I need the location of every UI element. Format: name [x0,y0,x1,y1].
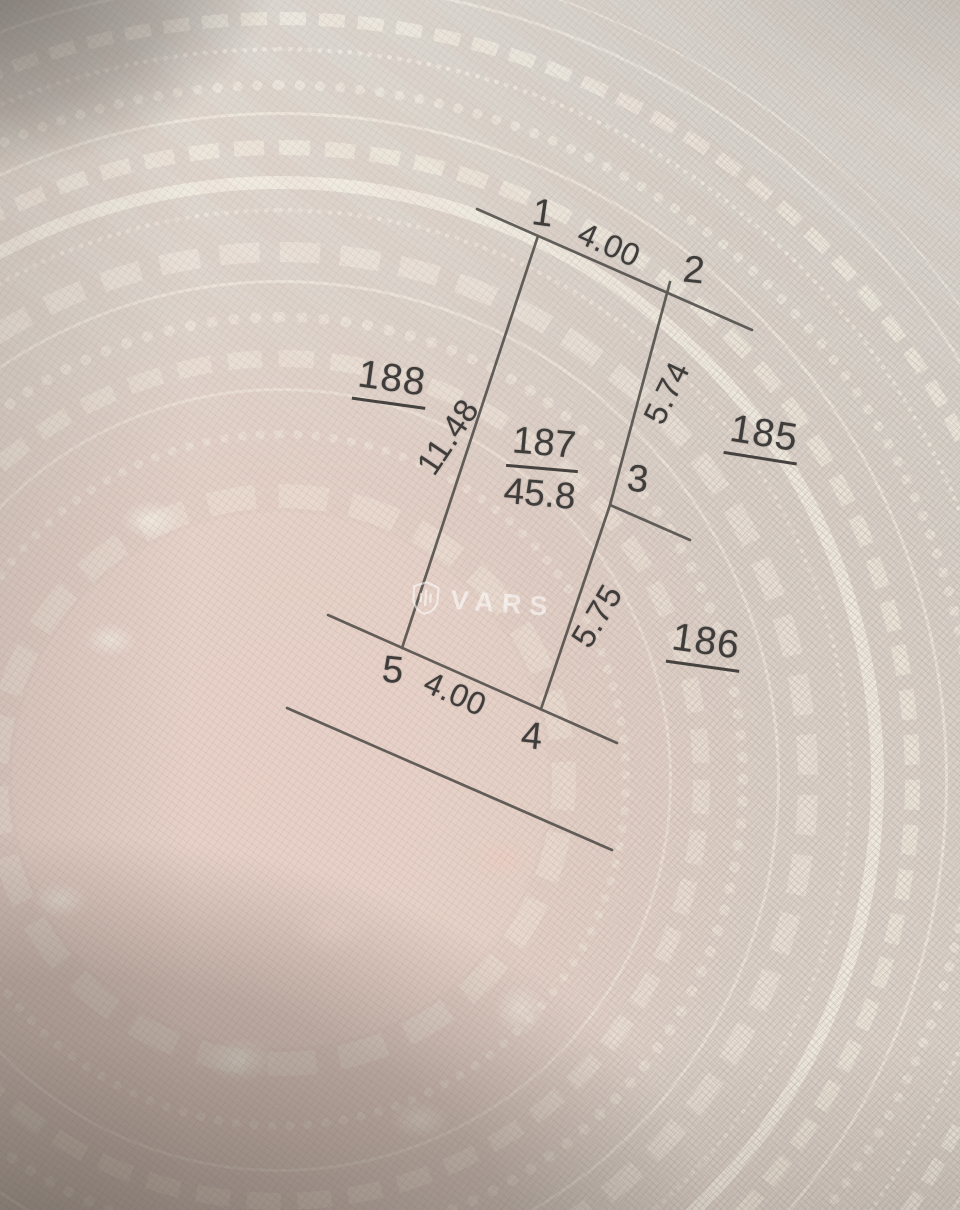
land-certificate-photo: 1 4.00 2 188 11.48 187 45.8 5.74 3 185 5… [0,0,960,1210]
top-boundary-line [477,209,752,330]
left-edge-line [402,236,538,648]
parcel-185-186-divider-line [610,505,690,540]
lower-road-line [287,708,612,850]
right-edge-upper-line [610,282,670,505]
right-edge-lower-line [541,505,610,709]
bottom-boundary-line [328,615,617,743]
parcel-sketch [0,0,960,1210]
